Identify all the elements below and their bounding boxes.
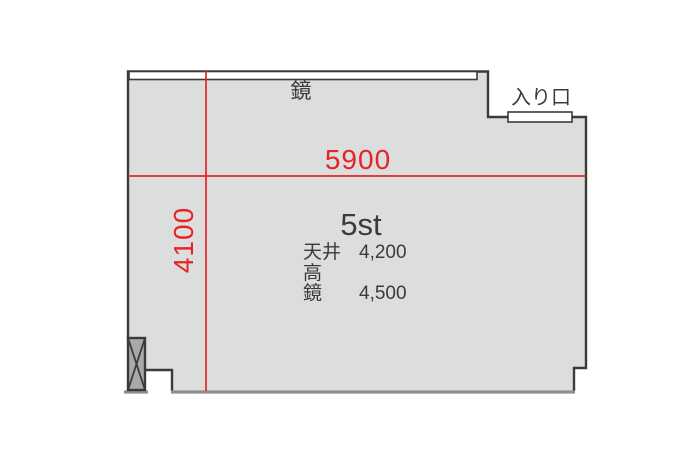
spec-value-ceiling-height: 4,200 (359, 243, 407, 284)
spec-label-mirror-width: 鏡 (303, 284, 359, 305)
pillar (128, 338, 145, 390)
spec-label-ceiling-height: 天井高 (303, 243, 359, 284)
entrance-door (508, 112, 572, 122)
width-dimension-value: 5900 (325, 146, 391, 174)
spec-value-mirror-width: 4,500 (359, 284, 407, 305)
spec-row-ceiling-height: 天井高 4,200 (303, 243, 407, 284)
mirror-label: 鏡 (291, 81, 312, 102)
floor-plan-canvas: 鏡 入り口 5900 4100 5st 天井高 4,200 鏡 4,500 (0, 0, 700, 465)
spec-row-mirror-width: 鏡 4,500 (303, 284, 407, 305)
notch-outline (146, 370, 172, 391)
entrance-label: 入り口 (511, 88, 571, 108)
studio-name: 5st (340, 209, 381, 240)
depth-dimension-value: 4100 (170, 207, 198, 273)
studio-specs: 天井高 4,200 鏡 4,500 (303, 243, 407, 305)
mirror-strip (129, 72, 477, 80)
